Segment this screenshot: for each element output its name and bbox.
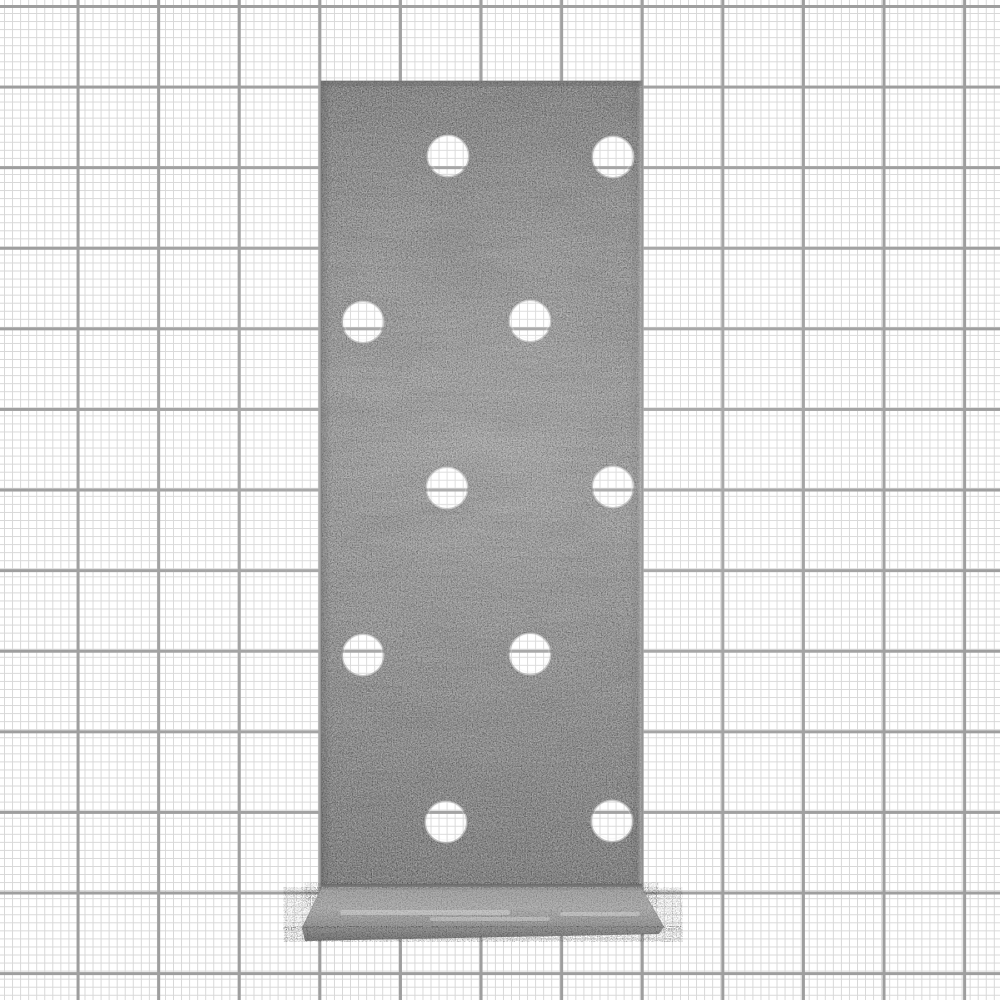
flange-streak bbox=[560, 912, 640, 916]
flange-streak bbox=[430, 917, 550, 921]
flange-streak bbox=[340, 910, 510, 915]
bracket-flange bbox=[302, 889, 664, 941]
graph-paper-background bbox=[0, 0, 1000, 1000]
bracket-image bbox=[0, 0, 1000, 1000]
